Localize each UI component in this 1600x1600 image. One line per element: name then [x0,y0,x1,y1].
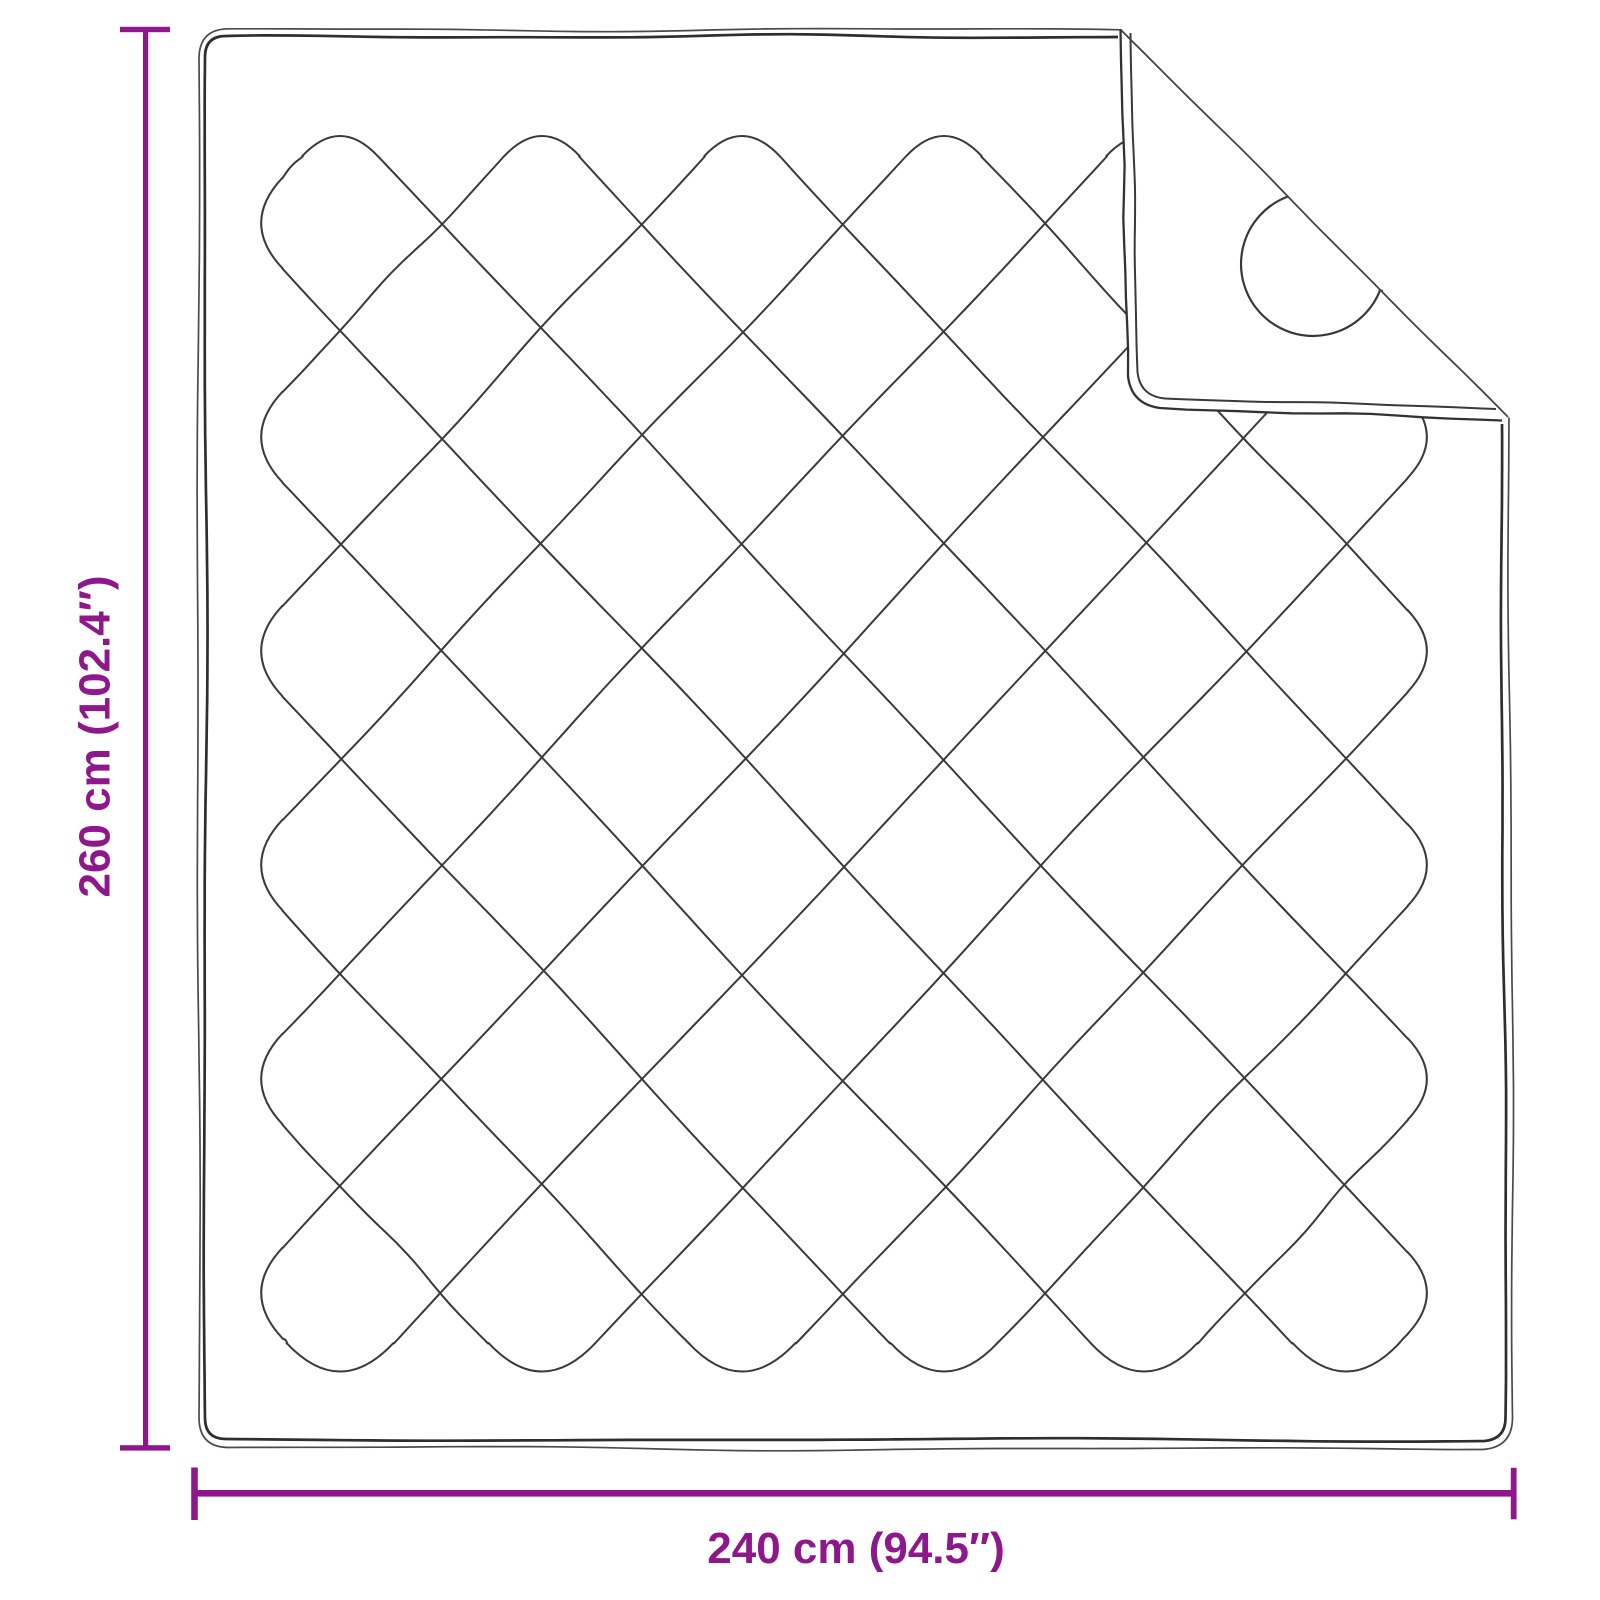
svg-text:260 cm (102.4″): 260 cm (102.4″) [71,576,120,898]
svg-text:240 cm (94.5″): 240 cm (94.5″) [707,1524,1004,1573]
